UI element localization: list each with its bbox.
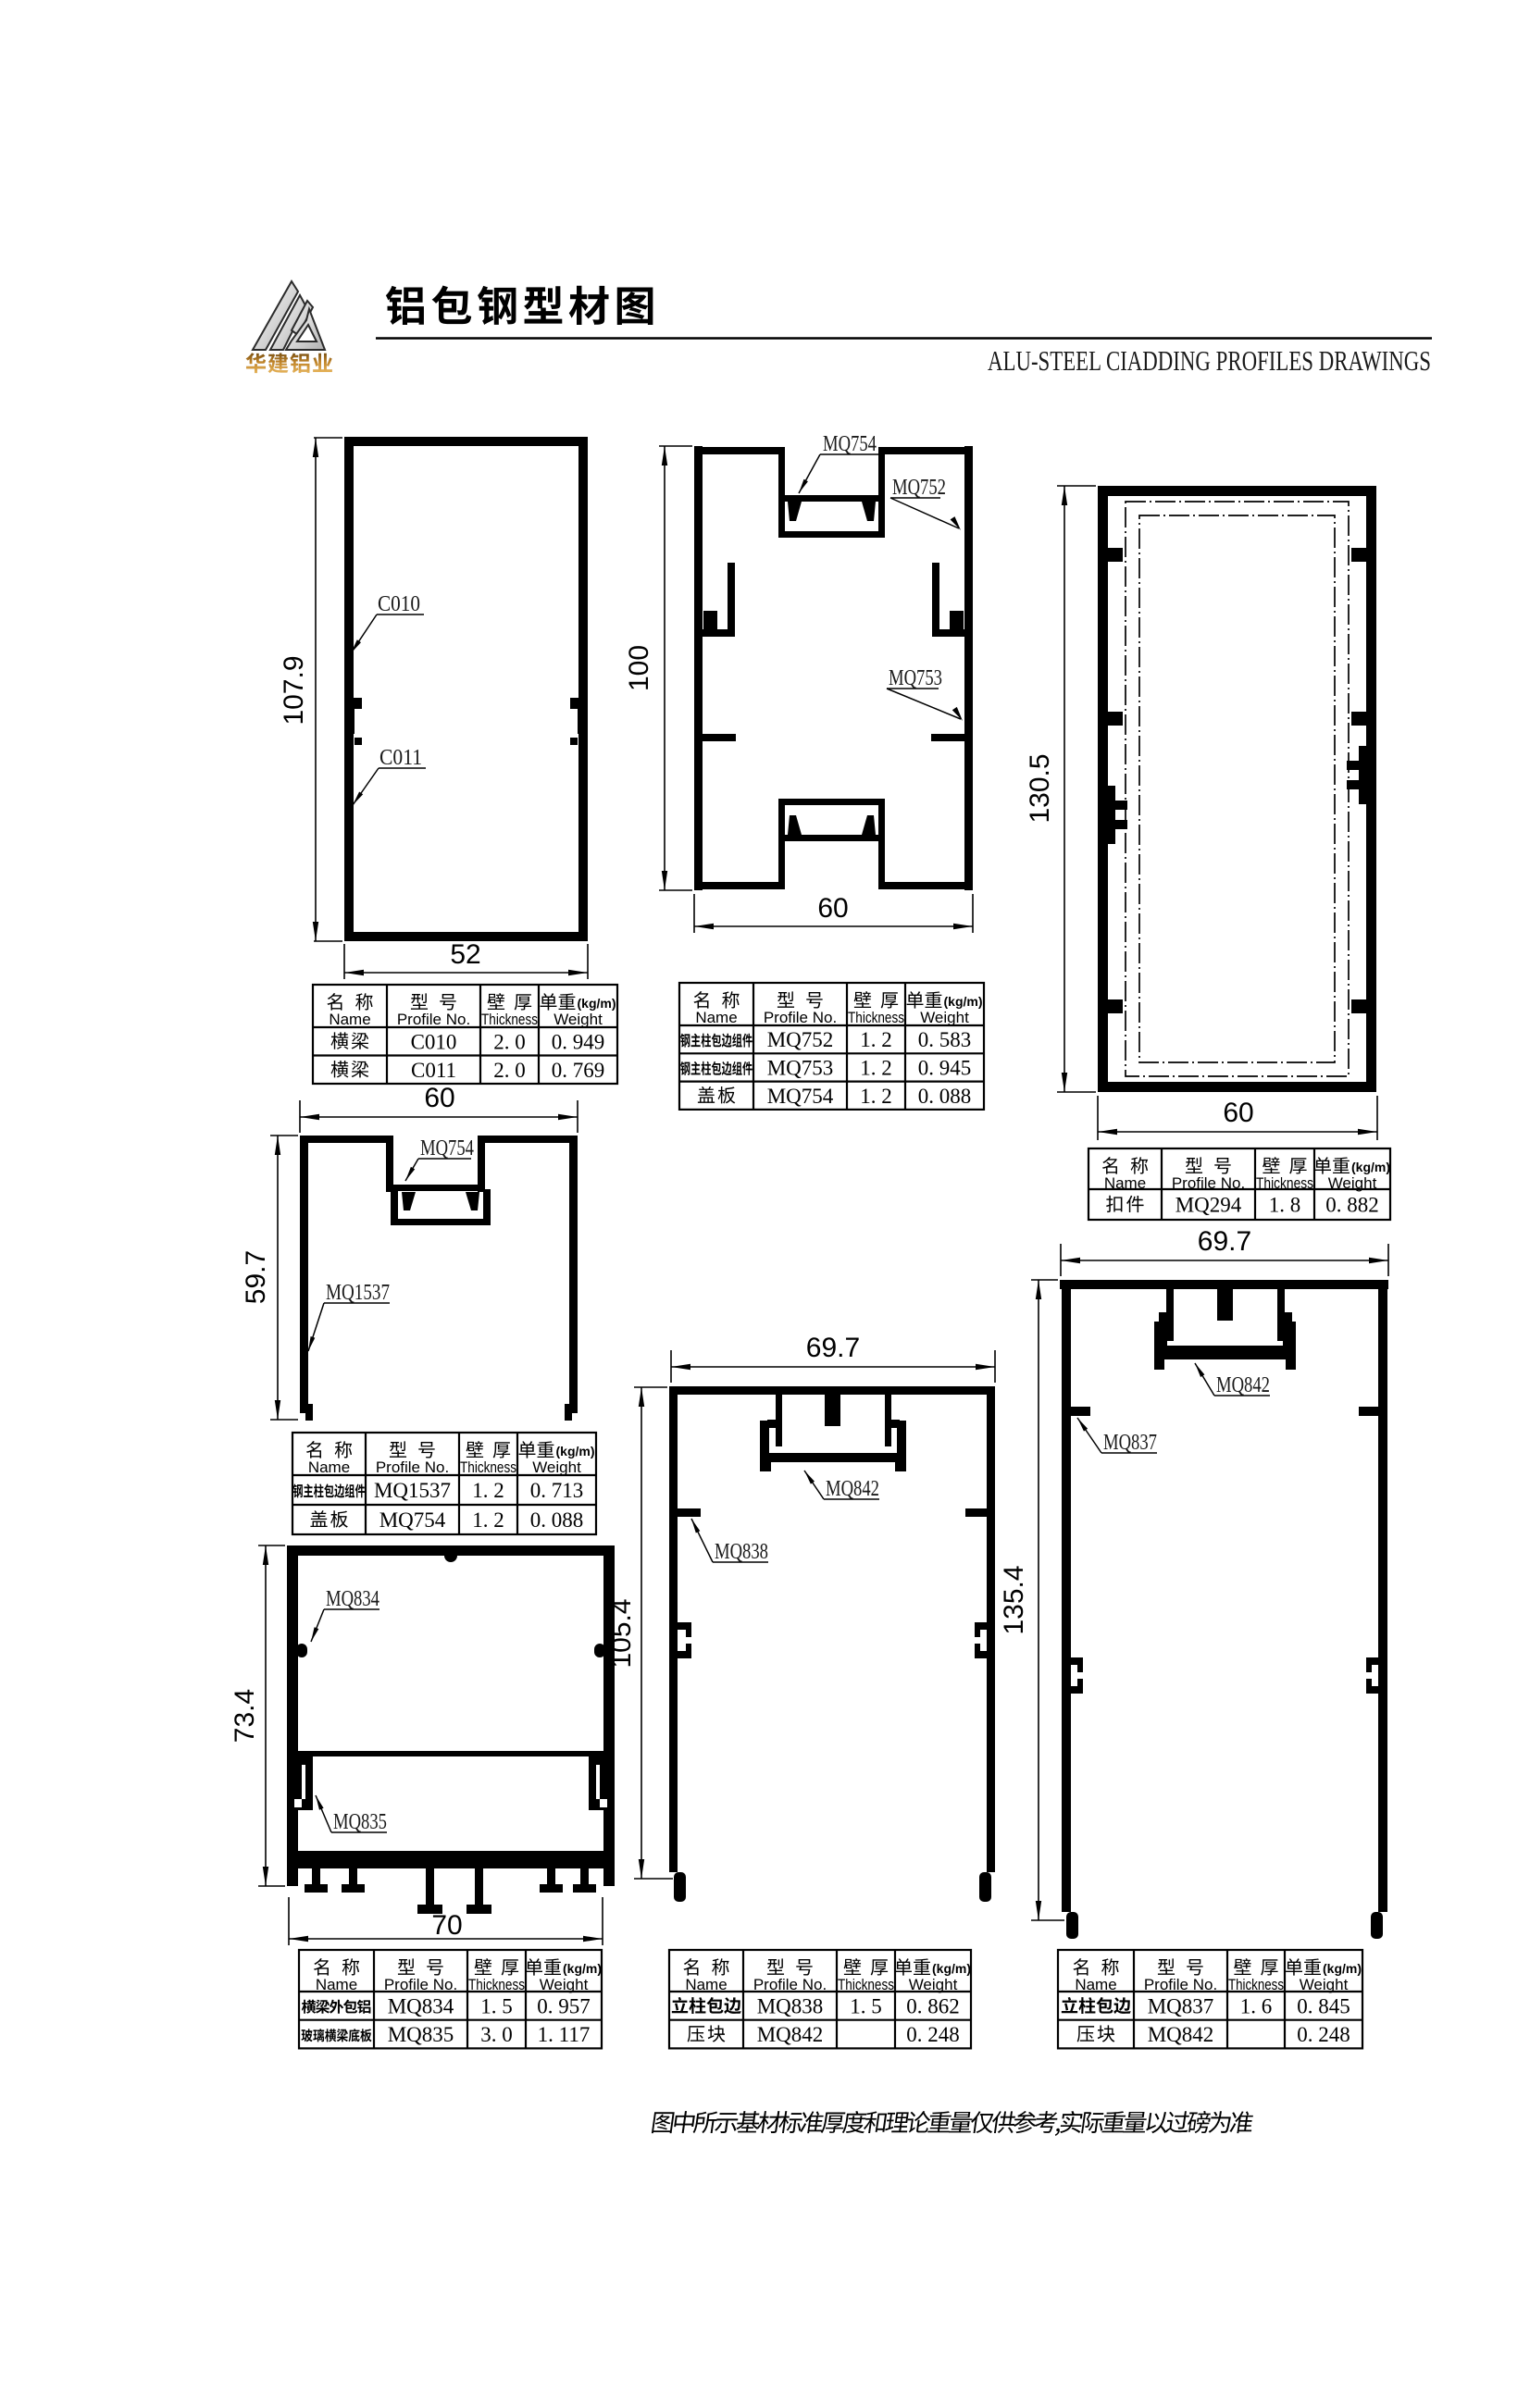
svg-text:0. 957: 0. 957: [537, 1994, 591, 2017]
svg-text:0. 845: 0. 845: [1297, 1994, 1350, 2017]
svg-text:1. 2: 1. 2: [472, 1508, 504, 1532]
svg-text:1. 5: 1. 5: [480, 1994, 513, 2017]
svg-text:ALU-STEEL CIADDING PROFILES DR: ALU-STEEL CIADDING PROFILES DRAWINGS: [988, 344, 1431, 377]
svg-text:MQ294: MQ294: [1175, 1194, 1242, 1217]
svg-text:Thickness: Thickness: [1256, 1174, 1313, 1192]
svg-text:73.4: 73.4: [230, 1689, 260, 1743]
svg-text:Name: Name: [685, 1976, 727, 1993]
svg-text:Thickness: Thickness: [848, 1009, 904, 1026]
svg-text:MQ842: MQ842: [1148, 2023, 1214, 2046]
svg-text:MQ835: MQ835: [388, 2023, 454, 2046]
svg-text:1. 5: 1. 5: [850, 1994, 882, 2017]
svg-text:0. 945: 0. 945: [918, 1056, 972, 1079]
svg-text:MQ1537: MQ1537: [374, 1479, 451, 1502]
svg-text:60: 60: [1223, 1098, 1253, 1128]
svg-text:Thickness: Thickness: [838, 1976, 894, 1993]
svg-text:Profile No.: Profile No.: [376, 1458, 449, 1476]
svg-text:MQ838: MQ838: [715, 1540, 768, 1564]
svg-text:69.7: 69.7: [1198, 1226, 1251, 1257]
svg-text:MQ1537: MQ1537: [326, 1281, 390, 1305]
svg-text:59.7: 59.7: [241, 1250, 271, 1304]
svg-text:0. 713: 0. 713: [530, 1479, 584, 1502]
svg-text:Name: Name: [1104, 1174, 1146, 1192]
svg-text:0. 583: 0. 583: [918, 1028, 972, 1051]
svg-text:52: 52: [450, 939, 480, 970]
svg-text:0. 882: 0. 882: [1325, 1194, 1379, 1217]
svg-text:MQ754: MQ754: [767, 1085, 834, 1108]
svg-text:0. 248: 0. 248: [906, 2023, 960, 2046]
svg-text:C011: C011: [379, 746, 422, 770]
svg-text:0. 862: 0. 862: [906, 1994, 960, 2017]
svg-text:1. 2: 1. 2: [860, 1085, 892, 1108]
svg-text:1. 6: 1. 6: [1240, 1994, 1273, 2017]
svg-text:MQ834: MQ834: [326, 1587, 379, 1611]
svg-text:1. 2: 1. 2: [860, 1056, 892, 1079]
svg-text:0. 088: 0. 088: [918, 1085, 972, 1108]
svg-text:Thickness: Thickness: [460, 1458, 516, 1476]
svg-text:Weight: Weight: [1328, 1174, 1377, 1192]
svg-text:Name: Name: [695, 1009, 737, 1026]
svg-text:MQ752: MQ752: [767, 1028, 834, 1051]
svg-text:(kg/m): (kg/m): [578, 996, 616, 1011]
svg-text:(kg/m): (kg/m): [563, 1961, 602, 1976]
svg-text:3. 0: 3. 0: [480, 2023, 513, 2046]
svg-text:70: 70: [431, 1910, 462, 1941]
svg-text:(kg/m): (kg/m): [556, 1444, 595, 1458]
svg-text:Thickness: Thickness: [481, 1011, 538, 1028]
svg-text:MQ837: MQ837: [1148, 1994, 1214, 2017]
svg-text:Thickness: Thickness: [468, 1976, 525, 1993]
svg-text:2. 0: 2. 0: [493, 1030, 526, 1053]
svg-text:2. 0: 2. 0: [493, 1059, 526, 1082]
svg-text:1. 117: 1. 117: [538, 2023, 591, 2046]
svg-text:(kg/m): (kg/m): [1323, 1961, 1362, 1976]
svg-text:MQ838: MQ838: [757, 1994, 824, 2017]
svg-text:Name: Name: [308, 1458, 350, 1476]
svg-text:C010: C010: [411, 1030, 457, 1053]
svg-text:(kg/m): (kg/m): [944, 994, 983, 1009]
svg-text:0. 088: 0. 088: [530, 1508, 584, 1532]
svg-text:107.9: 107.9: [279, 655, 309, 725]
svg-text:MQ752: MQ752: [892, 476, 946, 500]
svg-text:MQ753: MQ753: [889, 666, 942, 690]
svg-text:Profile No.: Profile No.: [1172, 1174, 1245, 1192]
svg-text:Name: Name: [316, 1976, 357, 1993]
svg-text:Thickness: Thickness: [1228, 1976, 1284, 1993]
svg-text:Profile No.: Profile No.: [397, 1011, 470, 1028]
svg-text:69.7: 69.7: [806, 1333, 860, 1363]
svg-text:1. 2: 1. 2: [860, 1028, 892, 1051]
svg-text:MQ834: MQ834: [388, 1994, 454, 2017]
svg-text:(kg/m): (kg/m): [1351, 1160, 1390, 1174]
svg-text:Weight: Weight: [540, 1976, 589, 1993]
svg-text:Name: Name: [329, 1011, 370, 1028]
svg-text:1. 8: 1. 8: [1269, 1194, 1301, 1217]
svg-text:MQ754: MQ754: [420, 1136, 474, 1161]
svg-text:Weight: Weight: [909, 1976, 958, 1993]
svg-text:1. 2: 1. 2: [472, 1479, 504, 1502]
svg-text:135.4: 135.4: [999, 1565, 1029, 1634]
svg-text:MQ842: MQ842: [826, 1477, 879, 1501]
svg-text:130.5: 130.5: [1025, 753, 1055, 823]
svg-text:MQ754: MQ754: [379, 1508, 446, 1532]
svg-text:MQ842: MQ842: [757, 2023, 824, 2046]
svg-text:Name: Name: [1075, 1976, 1116, 1993]
svg-text:Weight: Weight: [920, 1009, 969, 1026]
svg-text:60: 60: [817, 893, 848, 924]
svg-text:Profile No.: Profile No.: [764, 1009, 837, 1026]
svg-text:C011: C011: [411, 1059, 456, 1082]
svg-text:MQ842: MQ842: [1216, 1373, 1270, 1397]
svg-text:0. 248: 0. 248: [1297, 2023, 1350, 2046]
svg-text:0. 949: 0. 949: [552, 1030, 605, 1053]
svg-text:0. 769: 0. 769: [552, 1059, 605, 1082]
svg-text:Weight: Weight: [554, 1011, 603, 1028]
svg-text:Weight: Weight: [532, 1458, 581, 1476]
svg-text:105.4: 105.4: [606, 1598, 637, 1668]
svg-text:Profile No.: Profile No.: [384, 1976, 457, 1993]
svg-text:C010: C010: [378, 592, 420, 616]
svg-text:Weight: Weight: [1300, 1976, 1349, 1993]
svg-text:MQ753: MQ753: [767, 1056, 834, 1079]
svg-text:MQ837: MQ837: [1103, 1431, 1157, 1455]
svg-text:Profile No.: Profile No.: [1144, 1976, 1217, 1993]
svg-text:60: 60: [424, 1083, 454, 1113]
svg-text:Profile No.: Profile No.: [753, 1976, 827, 1993]
svg-text:MQ835: MQ835: [333, 1810, 387, 1834]
svg-text:(kg/m): (kg/m): [932, 1961, 971, 1976]
svg-text:MQ754: MQ754: [823, 432, 877, 456]
svg-text:100: 100: [624, 645, 654, 691]
